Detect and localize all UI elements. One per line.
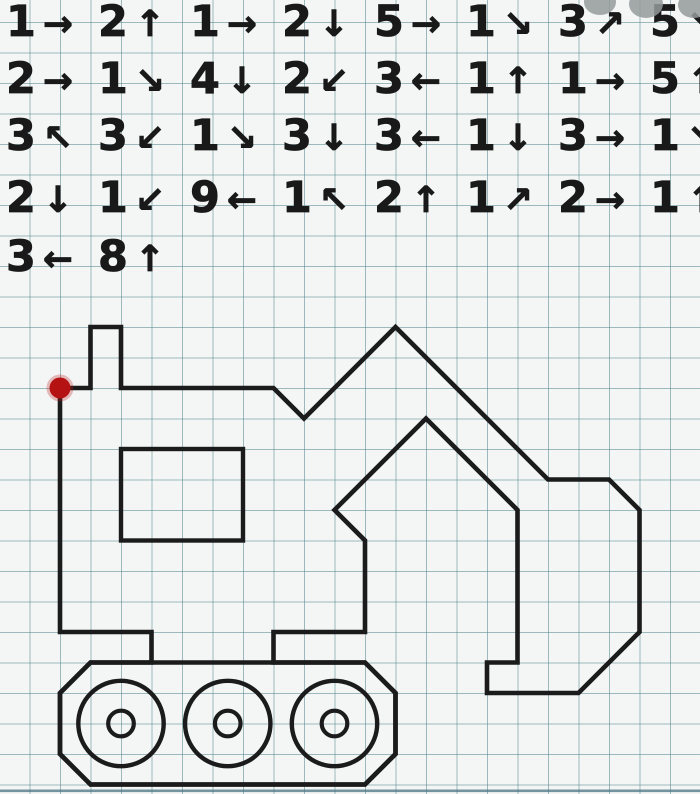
graph-paper-worksheet: 1→2↑1→2↓5→1↘3↗5↘2→1↘4↓2↙3←1↑1→5↑3↖3↙1↘3↓… bbox=[0, 0, 700, 794]
excavator-outline bbox=[60, 327, 640, 785]
watermark-blob bbox=[629, 0, 663, 18]
wheel-hub bbox=[322, 711, 348, 737]
wheel bbox=[185, 681, 270, 766]
watermark-blob bbox=[678, 0, 700, 18]
watermark-blob bbox=[584, 0, 616, 15]
wheel bbox=[292, 681, 377, 766]
cab-window bbox=[121, 449, 243, 541]
wheel bbox=[78, 681, 163, 766]
wheel-hub bbox=[108, 711, 134, 737]
photo-bottom-edge bbox=[0, 790, 700, 793]
excavator-drawing bbox=[0, 0, 700, 794]
start-dot bbox=[50, 378, 71, 399]
wheel-hub bbox=[215, 711, 241, 737]
